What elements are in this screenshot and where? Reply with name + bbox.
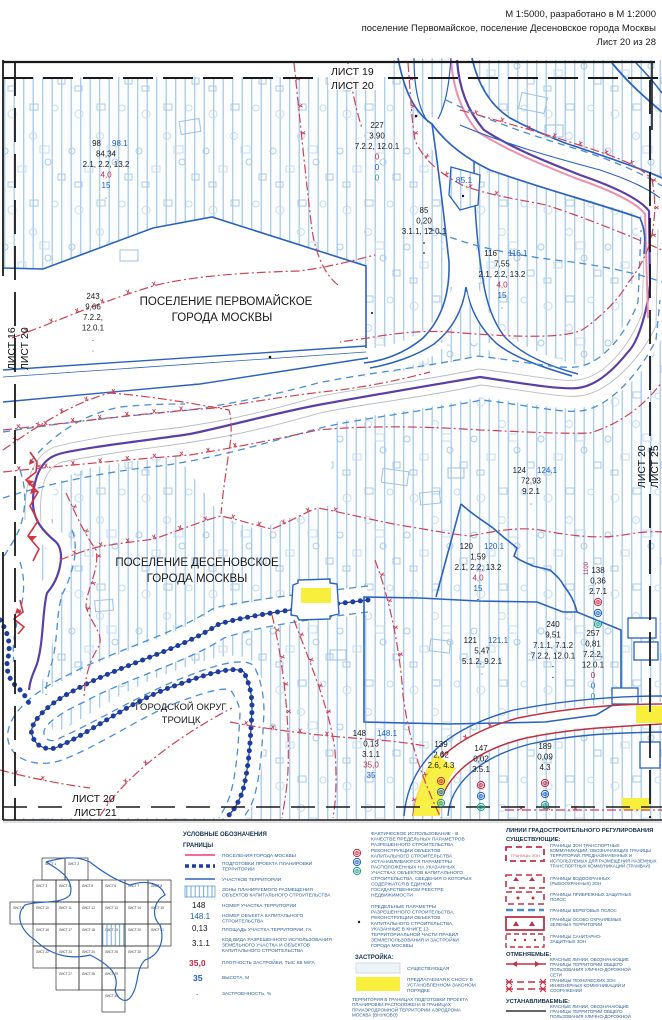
svg-text:УЧАСТКАХ ОБЪЕКТОВ КАПИТАЛЬНОГО: УЧАСТКАХ ОБЪЕКТОВ КАПИТАЛЬНОГО [371,870,463,876]
svg-text:Ф: Ф [438,790,444,797]
svg-text:ЛИСТ 26: ЛИСТ 26 [128,950,141,954]
svg-text:1100: 1100 [584,561,590,575]
svg-text:0: 0 [375,153,380,162]
svg-text:СТРОИТЕЛЬСТВА, СВЕДЕНИЯ О КОТО: СТРОИТЕЛЬСТВА, СВЕДЕНИЯ О КОТОРЫХ [371,876,472,882]
svg-text:Ф: Ф [595,622,601,629]
svg-text:148: 148 [192,901,206,910]
svg-text:ЛИСТ 17: ЛИСТ 17 [59,928,72,932]
svg-text:УЧАСТКОВ ТЕРРИТОРИИ: УЧАСТКОВ ТЕРРИТОРИИ [222,877,282,883]
svg-text:98: 98 [92,139,101,148]
svg-text:.: . [92,334,94,343]
svg-text:УСТАНОВЛЕННОМ ЗАКОНОМ: УСТАНОВЛЕННОМ ЗАКОНОМ [407,983,476,989]
svg-text:.: . [530,498,532,507]
svg-text:ПОСЕЛЕНИЕ ДЕСЕНОВСКОЕ: ПОСЕЛЕНИЕ ДЕСЕНОВСКОЕ [115,557,279,569]
svg-text:КАЧЕСТВЕ ПРЕДЕЛЬНЫХ ПАРАМЕТРОВ: КАЧЕСТВЕ ПРЕДЕЛЬНЫХ ПАРАМЕТРОВ [371,837,465,843]
svg-text:7.2.2, 12.0.1: 7.2.2, 12.0.1 [531,652,576,661]
svg-text:124: 124 [513,466,527,475]
svg-text:3.1.1, 12.0.1: 3.1.1, 12.0.1 [402,227,447,236]
svg-text:ГОСУДАРСТВЕННОМ РЕЕСТРЕ: ГОСУДАРСТВЕННОМ РЕЕСТРЕ [371,887,444,893]
svg-text:Ф: Ф [595,611,601,618]
svg-text:ЛИСТ 18: ЛИСТ 18 [82,928,95,932]
svg-text:Ф: Ф [542,803,548,810]
svg-text:-: - [477,595,480,604]
svg-text:2.1, 2.2, 13.2: 2.1, 2.2, 13.2 [83,160,130,169]
svg-text:116.1: 116.1 [508,249,528,258]
svg-text:12.0.1: 12.0.1 [82,324,105,333]
svg-text:0: 0 [591,682,596,691]
svg-text:СООРУЖЕНИЙ: СООРУЖЕНИЙ [550,988,582,993]
svg-text:ОБЪЕКТОВ КАПИТАЛЬНОГО СТРОИТЕЛ: ОБЪЕКТОВ КАПИТАЛЬНОГО СТРОИТЕЛЬСТВА [222,893,331,899]
svg-text:243: 243 [86,292,100,301]
svg-text:НОМЕР ОБЪЕКТА КАПИТАЛЬНОГО: НОМЕР ОБЪЕКТА КАПИТАЛЬНОГО [222,913,303,919]
svg-text:УСЛОВНЫЕ ОБОЗНАЧЕНИЯ: УСЛОВНЫЕ ОБОЗНАЧЕНИЯ [183,832,267,838]
svg-text:ЛИСТ 8: ЛИСТ 8 [151,884,162,888]
svg-text:ЛИСТ 24: ЛИСТ 24 [82,950,95,954]
svg-text:Ф: Ф [354,869,360,876]
svg-text:0: 0 [375,174,380,183]
svg-text:ЛИСТ 19: ЛИСТ 19 [331,66,374,78]
svg-text:ЗЕМЕЛЬНОГО УЧАСТКА И ОБЪЕКТОВ: ЗЕМЕЛЬНОГО УЧАСТКА И ОБЪЕКТОВ [222,943,310,949]
svg-text:227: 227 [370,121,384,130]
svg-text:0,13: 0,13 [363,740,379,749]
svg-text:ВЫСОТА, М: ВЫСОТА, М [222,975,249,981]
svg-text:2.7.1: 2.7.1 [589,587,607,596]
svg-text:ЛИСТ 28: ЛИСТ 28 [82,972,95,976]
svg-text:ПОДГОТОВКИ ПРОЕКТА ПЛАНИРОВКИ: ПОДГОТОВКИ ПРОЕКТА ПЛАНИРОВКИ [222,861,313,867]
svg-text:ЛИСТ 15: ЛИСТ 15 [151,906,164,910]
svg-text:-: - [552,673,555,682]
svg-text:7.2.2, 12.0.1: 7.2.2, 12.0.1 [355,142,400,151]
svg-text:0,13: 0,13 [192,924,208,933]
svg-text:ЗЕЛЕНЫХ ТЕРРИТОРИЙ: ЗЕЛЕНЫХ ТЕРРИТОРИЙ [550,922,602,927]
svg-text:240: 240 [546,620,560,629]
svg-text:ЛИСТ 20: ЛИСТ 20 [636,445,648,488]
svg-text:ГОРОДА МОСКВЫ: ГОРОДА МОСКВЫ [371,943,413,949]
svg-text:СУЩЕСТВУЮЩАЯ: СУЩЕСТВУЮЩАЯ [407,966,450,972]
svg-text:124.1: 124.1 [537,466,558,475]
svg-text:72,93: 72,93 [521,477,542,486]
svg-text:85.1: 85.1 [456,175,473,185]
svg-text:ЛИСТ 21: ЛИСТ 21 [151,928,164,932]
svg-text:5,47: 5,47 [474,647,490,656]
svg-text:Ф: Ф [478,783,484,790]
svg-text:ЛИСТ 2: ЛИСТ 2 [68,862,79,866]
svg-text:Лист 20 из 28: Лист 20 из 28 [597,37,656,48]
svg-text:ЗОНЫ ПЛАНИРУЕМОГО РАЗМЕЩЕНИЯ: ЗОНЫ ПЛАНИРУЕМОГО РАЗМЕЩЕНИЯ [222,887,314,893]
svg-text:257: 257 [586,629,600,638]
svg-text:НЕДВИЖИМОСТИ: НЕДВИЖИМОСТИ [371,893,413,899]
svg-text:0,36: 0,36 [590,577,606,586]
svg-text:0,02: 0,02 [473,755,489,764]
svg-text:4,0: 4,0 [472,574,484,583]
svg-text:ПРЕДЕЛЬНЫЕ ПАРАМЕТРЫ: ПРЕДЕЛЬНЫЕ ПАРАМЕТРЫ [371,904,436,910]
svg-text:.: . [501,302,503,311]
svg-text:КАПИТАЛЬНОГО СТРОИТЕЛЬСТВА: КАПИТАЛЬНОГО СТРОИТЕЛЬСТВА [371,853,453,859]
svg-text:ЛИСТ 11: ЛИСТ 11 [59,906,72,910]
svg-text:ЛИСТ 6: ЛИСТ 6 [105,884,116,888]
svg-text:ЛИСТ 20: ЛИСТ 20 [72,793,115,805]
svg-text:ГРАНИЦЫ: ГРАНИЦЫ [183,843,213,849]
svg-text:121: 121 [464,636,478,645]
svg-text:РЕКОНСТРУКЦИИ ОБЪЕКТОВ: РЕКОНСТРУКЦИИ ОБЪЕКТОВ [371,915,440,921]
svg-text:ПОРЯДКЕ: ПОРЯДКЕ [407,988,430,994]
svg-text:ПРИАЭРОДРОМНОЙ ТЕРРИТОРИИ АЭРО: ПРИАЭРОДРОМНОЙ ТЕРРИТОРИИ АЭРОДРОМА [352,1005,462,1012]
svg-text:УСТАНАВЛИВАЮТСЯ ПАРАМЕТРЫ: УСТАНАВЛИВАЮТСЯ ПАРАМЕТРЫ [371,859,452,865]
svg-text:0: 0 [591,671,596,680]
svg-text:3.1.1: 3.1.1 [362,750,380,759]
svg-text:148: 148 [353,729,367,738]
svg-text:ЛИСТ 16: ЛИСТ 16 [36,928,49,932]
svg-text:139: 139 [434,740,448,749]
svg-text:РАЗРЕШЕННОГО СТРОИТЕЛЬСТВА: РАЗРЕШЕННОГО СТРОИТЕЛЬСТВА [371,842,454,848]
svg-text:ГОРОДСКОЙ ОКРУГ: ГОРОДСКОЙ ОКРУГ [135,701,226,713]
svg-text:0,81: 0,81 [585,640,601,649]
svg-text:ПОЛЬЗОВАНИЯ УЛИЧНО-ДОРОЖНОЙ: ПОЛЬЗОВАНИЯ УЛИЧНО-ДОРОЖНОЙ [550,967,631,972]
svg-text:85: 85 [420,206,429,215]
svg-text:9.2.1: 9.2.1 [522,487,540,496]
svg-text:ЛИСТ 10: ЛИСТ 10 [36,906,49,910]
svg-text:148.1: 148.1 [190,912,211,921]
svg-text:ЛИСТ 21: ЛИСТ 21 [74,807,117,819]
svg-text:2.1, 2.2, 13.2: 2.1, 2.2, 13.2 [479,270,526,279]
svg-text:ЛИНИИ ГРАДОСТРОИТЕЛЬНОГО РЕГУЛ: ЛИНИИ ГРАДОСТРОИТЕЛЬНОГО РЕГУЛИРОВАНИЯ [506,828,653,834]
svg-text:Ф: Ф [478,794,484,801]
svg-text:ЗАСТРОЕННОСТЬ, %: ЗАСТРОЕННОСТЬ, % [222,991,272,997]
svg-text:ТЕРРИТОРИИ: ТЕРРИТОРИИ [222,867,255,873]
svg-text:ЛИСТ 27: ЛИСТ 27 [59,972,72,976]
svg-text:РАЗРЕШЕННОГО СТРОИТЕЛЬСТВА,: РАЗРЕШЕННОГО СТРОИТЕЛЬСТВА, [371,910,455,916]
svg-text:148.1: 148.1 [377,729,398,738]
svg-text:ЛИСТ 20: ЛИСТ 20 [331,80,374,92]
svg-text:35: 35 [367,771,376,780]
svg-text:120.1: 120.1 [484,542,505,551]
svg-text:ЛИСТ 4: ЛИСТ 4 [59,884,70,888]
svg-text:0,09: 0,09 [537,753,553,762]
svg-text:4,0: 4,0 [100,171,112,180]
svg-text:Ф: Ф [542,792,548,799]
svg-text:7.1.1, 7.1.2: 7.1.1, 7.1.2 [533,641,574,650]
svg-text:СТРОИТЕЛЬСТВА: СТРОИТЕЛЬСТВА [222,919,264,925]
svg-text:2.6, 4.3: 2.6, 4.3 [428,761,455,770]
svg-text:Ф: Ф [595,600,601,607]
svg-text:ЛИСТ 25: ЛИСТ 25 [649,445,661,488]
svg-text:ЗАЩИТНЫХ ЗОН: ЗАЩИТНЫХ ЗОН [550,939,586,944]
svg-text:0: 0 [375,163,380,172]
svg-text:М 1:5000, разработано в М 1:20: М 1:5000, разработано в М 1:2000 [505,9,656,20]
svg-text:.: . [481,668,483,677]
svg-text:ЛИСТ 16: ЛИСТ 16 [6,327,18,370]
svg-text:ЗАСТРОЙКА:: ЗАСТРОЙКА: [355,953,394,961]
svg-text:Ф: Ф [354,851,360,858]
svg-text:СЕТИ: СЕТИ [550,972,562,977]
svg-text:3.1.1: 3.1.1 [192,939,210,948]
svg-text:2.1, 2.2, 13.2: 2.1, 2.2, 13.2 [455,563,502,572]
svg-text:-: - [552,662,555,671]
svg-text:4,0: 4,0 [496,281,508,290]
svg-text:СОДЕРЖАТСЯ В ЕДИНОМ: СОДЕРЖАТСЯ В ЕДИНОМ [371,881,432,887]
svg-text:ЛИСТ 3: ЛИСТ 3 [36,884,47,888]
svg-text:.: . [105,192,107,201]
svg-text:ПОЛОС: ПОЛОС [550,897,566,902]
svg-text:0,20: 0,20 [416,217,432,226]
svg-text:ЛИСТ 5: ЛИСТ 5 [82,884,93,888]
svg-text:0: 0 [591,692,596,701]
svg-text:ЛИСТ 12: ЛИСТ 12 [82,906,95,910]
svg-text:98.1: 98.1 [112,139,128,148]
svg-text:КАПИТАЛЬНОГО СТРОИТЕЛЬСТВА,: КАПИТАЛЬНОГО СТРОИТЕЛЬСТВА, [371,921,453,927]
svg-text:ЛИСТ 29: ЛИСТ 29 [105,972,118,976]
svg-text:4.3: 4.3 [539,763,551,772]
svg-text:ТРОИЦК: ТРОИЦК [162,715,201,726]
svg-text:РАСПОЛОЖЕННЫХ НА УКАЗАННЫХ: РАСПОЛОЖЕННЫХ НА УКАЗАННЫХ [371,865,456,871]
svg-text:УКАЗАННЫЕ В КНИГЕ 13: УКАЗАННЫЕ В КНИГЕ 13 [371,926,429,932]
svg-text:ЛИСТ 23: ЛИСТ 23 [59,950,72,954]
svg-text:ЛИСТ 14: ЛИСТ 14 [128,906,141,910]
svg-text:15: 15 [498,291,507,300]
svg-text:.: . [196,988,198,997]
svg-text:2,62: 2,62 [433,751,449,760]
svg-text:9,51: 9,51 [545,631,561,640]
svg-text:84,34: 84,34 [96,150,117,159]
svg-text:Ф: Ф [354,860,360,867]
svg-text:ГОРОДА МОСКВЫ: ГОРОДА МОСКВЫ [147,573,248,585]
svg-text:121.1: 121.1 [488,636,509,645]
svg-text:Ф: Ф [478,805,484,812]
svg-text:35,0: 35,0 [363,761,379,770]
svg-text:ГРАНИЦЫ ЗОН: ГРАНИЦЫ ЗОН [511,853,540,858]
svg-text:ЛИСТ 22: ЛИСТ 22 [36,950,49,954]
svg-text:(РЫБООХРАННЫХ) ЗОН: (РЫБООХРАННЫХ) ЗОН [550,881,601,886]
svg-text:15: 15 [474,584,483,593]
svg-text:ЛИСТ 20: ЛИСТ 20 [19,327,31,370]
svg-text:Ф: Ф [438,801,444,808]
svg-text:ЛИСТ 13: ЛИСТ 13 [105,906,118,910]
svg-text:ПЛОЩАДЬ УЧАСТКА ТЕРРИТОРИИ, ГА: ПЛОЩАДЬ УЧАСТКА ТЕРРИТОРИИ, ГА [222,927,312,933]
svg-text:ТРАНСПОРТНЫХ КОММУНИКАЦИЙ (ТРА: ТРАНСПОРТНЫХ КОММУНИКАЦИЙ (ТРАМВАЙ) [550,863,651,868]
svg-text:116: 116 [484,249,497,258]
svg-text:35: 35 [193,973,203,983]
svg-text:ФАКТИЧЕСКОЕ ИСПОЛЬЗОВАНИЕ - В: ФАКТИЧЕСКОЕ ИСПОЛЬЗОВАНИЕ - В [371,831,458,837]
svg-text:ЛИСТ 20: ЛИСТ 20 [128,928,141,932]
svg-text:7,55: 7,55 [494,260,510,269]
svg-text:138: 138 [591,566,605,575]
svg-text:35,0: 35,0 [189,958,206,968]
svg-text:ПОСЕЛЕНИЕ ПЕРВОМАЙСКОЕ: ПОСЕЛЕНИЕ ПЕРВОМАЙСКОЕ [140,295,313,308]
svg-text:ГРАНИЦЫ БЕРЕГОВЫХ ПОЛОС: ГРАНИЦЫ БЕРЕГОВЫХ ПОЛОС [550,908,617,913]
svg-text:7.2.2,: 7.2.2, [83,313,103,322]
svg-text:НОМЕР УЧАСТКА ТЕРРИТОРИИ: НОМЕР УЧАСТКА ТЕРРИТОРИИ [222,903,297,909]
svg-text:5.1.2, 9.2.1: 5.1.2, 9.2.1 [462,657,503,666]
svg-text:120: 120 [460,542,474,551]
svg-text:МОСКВА (ВНУКОВО): МОСКВА (ВНУКОВО) [352,1013,398,1018]
svg-text:.: . [92,345,94,354]
svg-text:ПОСЕЛЕНИЯ ГОРОДА МОСКВЫ: ПОСЕЛЕНИЯ ГОРОДА МОСКВЫ [222,853,296,859]
svg-text:ПРЕДЛАГАЕМАЯ К СНОСУ В: ПРЕДЛАГАЕМАЯ К СНОСУ В [407,977,473,983]
svg-text:3.90: 3.90 [369,132,385,141]
svg-text:КАПИТАЛЬНОГО СТРОИТЕЛЬСТВА: КАПИТАЛЬНОГО СТРОИТЕЛЬСТВА [222,948,304,954]
svg-text:9,66: 9,66 [85,303,101,312]
svg-text:15: 15 [102,181,111,190]
svg-text:ЛИСТ 25: ЛИСТ 25 [105,950,118,954]
svg-text:189: 189 [538,742,552,751]
svg-text:РЕКОНСТРУКЦИИ ОБЪЕКТОВ: РЕКОНСТРУКЦИИ ОБЪЕКТОВ [371,848,440,854]
svg-text:Ф: Ф [438,779,444,786]
svg-text:147: 147 [474,744,488,753]
svg-text:3.5.1: 3.5.1 [472,765,490,774]
svg-text:1,59: 1,59 [470,553,486,562]
svg-text:7.2.2,: 7.2.2, [583,650,603,659]
svg-text:поселение Первомайское, поселе: поселение Первомайское, поселение Десено… [362,23,657,34]
svg-text:ОТМЕНЯЕМЫЕ:: ОТМЕНЯЕМЫЕ: [506,952,551,958]
svg-text:КОД ВИДА РАЗРЕШЕННОГО ИСПОЛЬЗО: КОД ВИДА РАЗРЕШЕННОГО ИСПОЛЬЗОВАНИЯ [222,937,332,943]
svg-text:ГОРОДА МОСКВЫ: ГОРОДА МОСКВЫ [172,312,273,324]
svg-text:ПОЛЬЗОВАНИЯ УЛИЧНО-ДОРОЖНОЙ: ПОЛЬЗОВАНИЯ УЛИЧНО-ДОРОЖНОЙ [550,1014,631,1019]
svg-text:12.0.1: 12.0.1 [582,661,605,670]
svg-text:Ф: Ф [542,781,548,788]
